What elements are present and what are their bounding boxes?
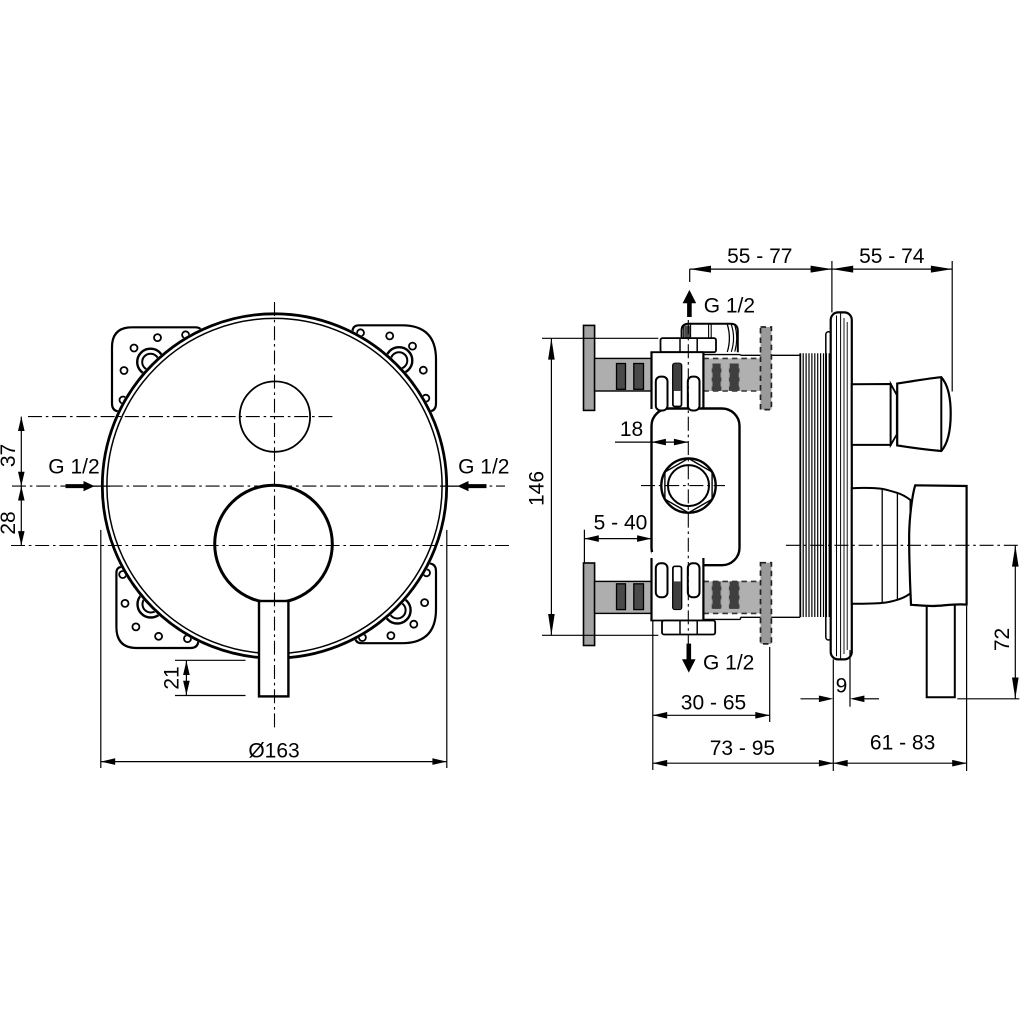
svg-text:G 1/2: G 1/2 [458, 455, 509, 478]
svg-text:146: 146 [526, 471, 549, 506]
svg-text:73 - 95: 73 - 95 [710, 737, 775, 760]
svg-text:18: 18 [620, 418, 643, 441]
svg-text:55 - 77: 55 - 77 [727, 245, 792, 268]
svg-text:G 1/2: G 1/2 [704, 295, 755, 318]
svg-text:5 - 40: 5 - 40 [594, 512, 648, 535]
svg-text:61 - 83: 61 - 83 [870, 731, 935, 754]
svg-text:21: 21 [161, 666, 184, 689]
svg-text:28: 28 [0, 511, 20, 534]
svg-text:30 - 65: 30 - 65 [681, 692, 746, 715]
svg-text:Ø163: Ø163 [248, 740, 299, 763]
svg-text:72: 72 [991, 628, 1014, 651]
svg-text:55 - 74: 55 - 74 [859, 245, 925, 268]
svg-text:G 1/2: G 1/2 [703, 652, 754, 675]
svg-text:37: 37 [0, 444, 20, 467]
svg-text:G 1/2: G 1/2 [48, 455, 99, 478]
svg-text:9: 9 [836, 674, 848, 697]
